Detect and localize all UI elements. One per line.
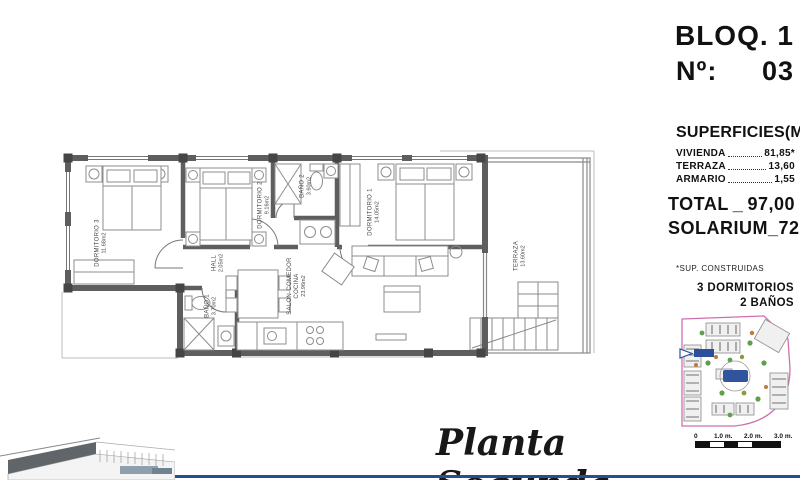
block-title: BLOQ. 1 — [672, 20, 794, 52]
scale-1m: 1.0 m. — [714, 433, 732, 440]
terrace-railing — [485, 158, 590, 353]
room-label-terraza: TERRAZA 13.60m2 — [513, 241, 526, 271]
room-label-bano-1: BAÑO 1 3.70m2 — [204, 294, 217, 318]
render-window — [152, 468, 172, 474]
footer-accent-line — [95, 475, 800, 478]
unit-number-row: Nº: 03 — [676, 56, 794, 87]
scale-3m: 3.0 m. — [774, 433, 792, 440]
building-render-image — [0, 398, 175, 480]
surfaces-table: VIVIENDA 81,85* TERRAZA 13,60 ARMARIO 1,… — [676, 146, 795, 185]
solarium-row: SOLARIUM _ 72,00 — [668, 218, 795, 242]
site-map — [672, 313, 798, 431]
unit-number-label: Nº: — [676, 56, 717, 87]
feature-dormitorios: 3 DORMITORIOS — [672, 281, 794, 296]
surface-row-terraza: TERRAZA 13,60 — [676, 159, 795, 172]
surfaces-footnote: *SUP. CONSTRUIDAS — [676, 264, 764, 273]
pool — [723, 370, 748, 382]
room-label-hall: HALL 2.05m2 — [211, 254, 224, 272]
unit-number-value: 03 — [762, 56, 794, 87]
dotted-leader — [728, 182, 772, 183]
brochure-page: DORMITORIO 3 11.68m2 DORMITORIO 2 9.16m2… — [0, 0, 800, 480]
totals-block: TOTAL _ 97,00 SOLARIUM _ 72,00 — [668, 194, 795, 242]
room-label-dormitorio-2: DORMITORIO 2 9.16m2 — [257, 181, 270, 229]
dotted-leader — [728, 156, 763, 157]
dotted-leader — [728, 169, 767, 170]
unit-location-marker — [694, 349, 714, 357]
room-label-salon-comedor-cocina: SALON-COMEDOR COCINA 23.96m2 — [287, 257, 307, 315]
total-row: TOTAL _ 97,00 — [668, 194, 795, 218]
feature-banos: 2 BAÑOS — [672, 296, 794, 311]
surfaces-title: SUPERFICIES(M2) — [676, 124, 796, 142]
room-label-bano-2: BAÑO 2 3.60m2 — [299, 174, 312, 198]
surface-row-vivienda: VIVIENDA 81,85* — [676, 146, 795, 159]
surface-row-armario: ARMARIO 1,55 — [676, 172, 795, 185]
floor-caption: Planta Segunda — [436, 422, 716, 480]
room-label-dormitorio-1: DORMITORIO 1 14.05m2 — [367, 188, 380, 236]
features-block: 3 DORMITORIOS 2 BAÑOS — [672, 281, 794, 311]
room-label-dormitorio-3: DORMITORIO 3 11.68m2 — [94, 219, 107, 267]
scale-2m: 2.0 m. — [744, 433, 762, 440]
